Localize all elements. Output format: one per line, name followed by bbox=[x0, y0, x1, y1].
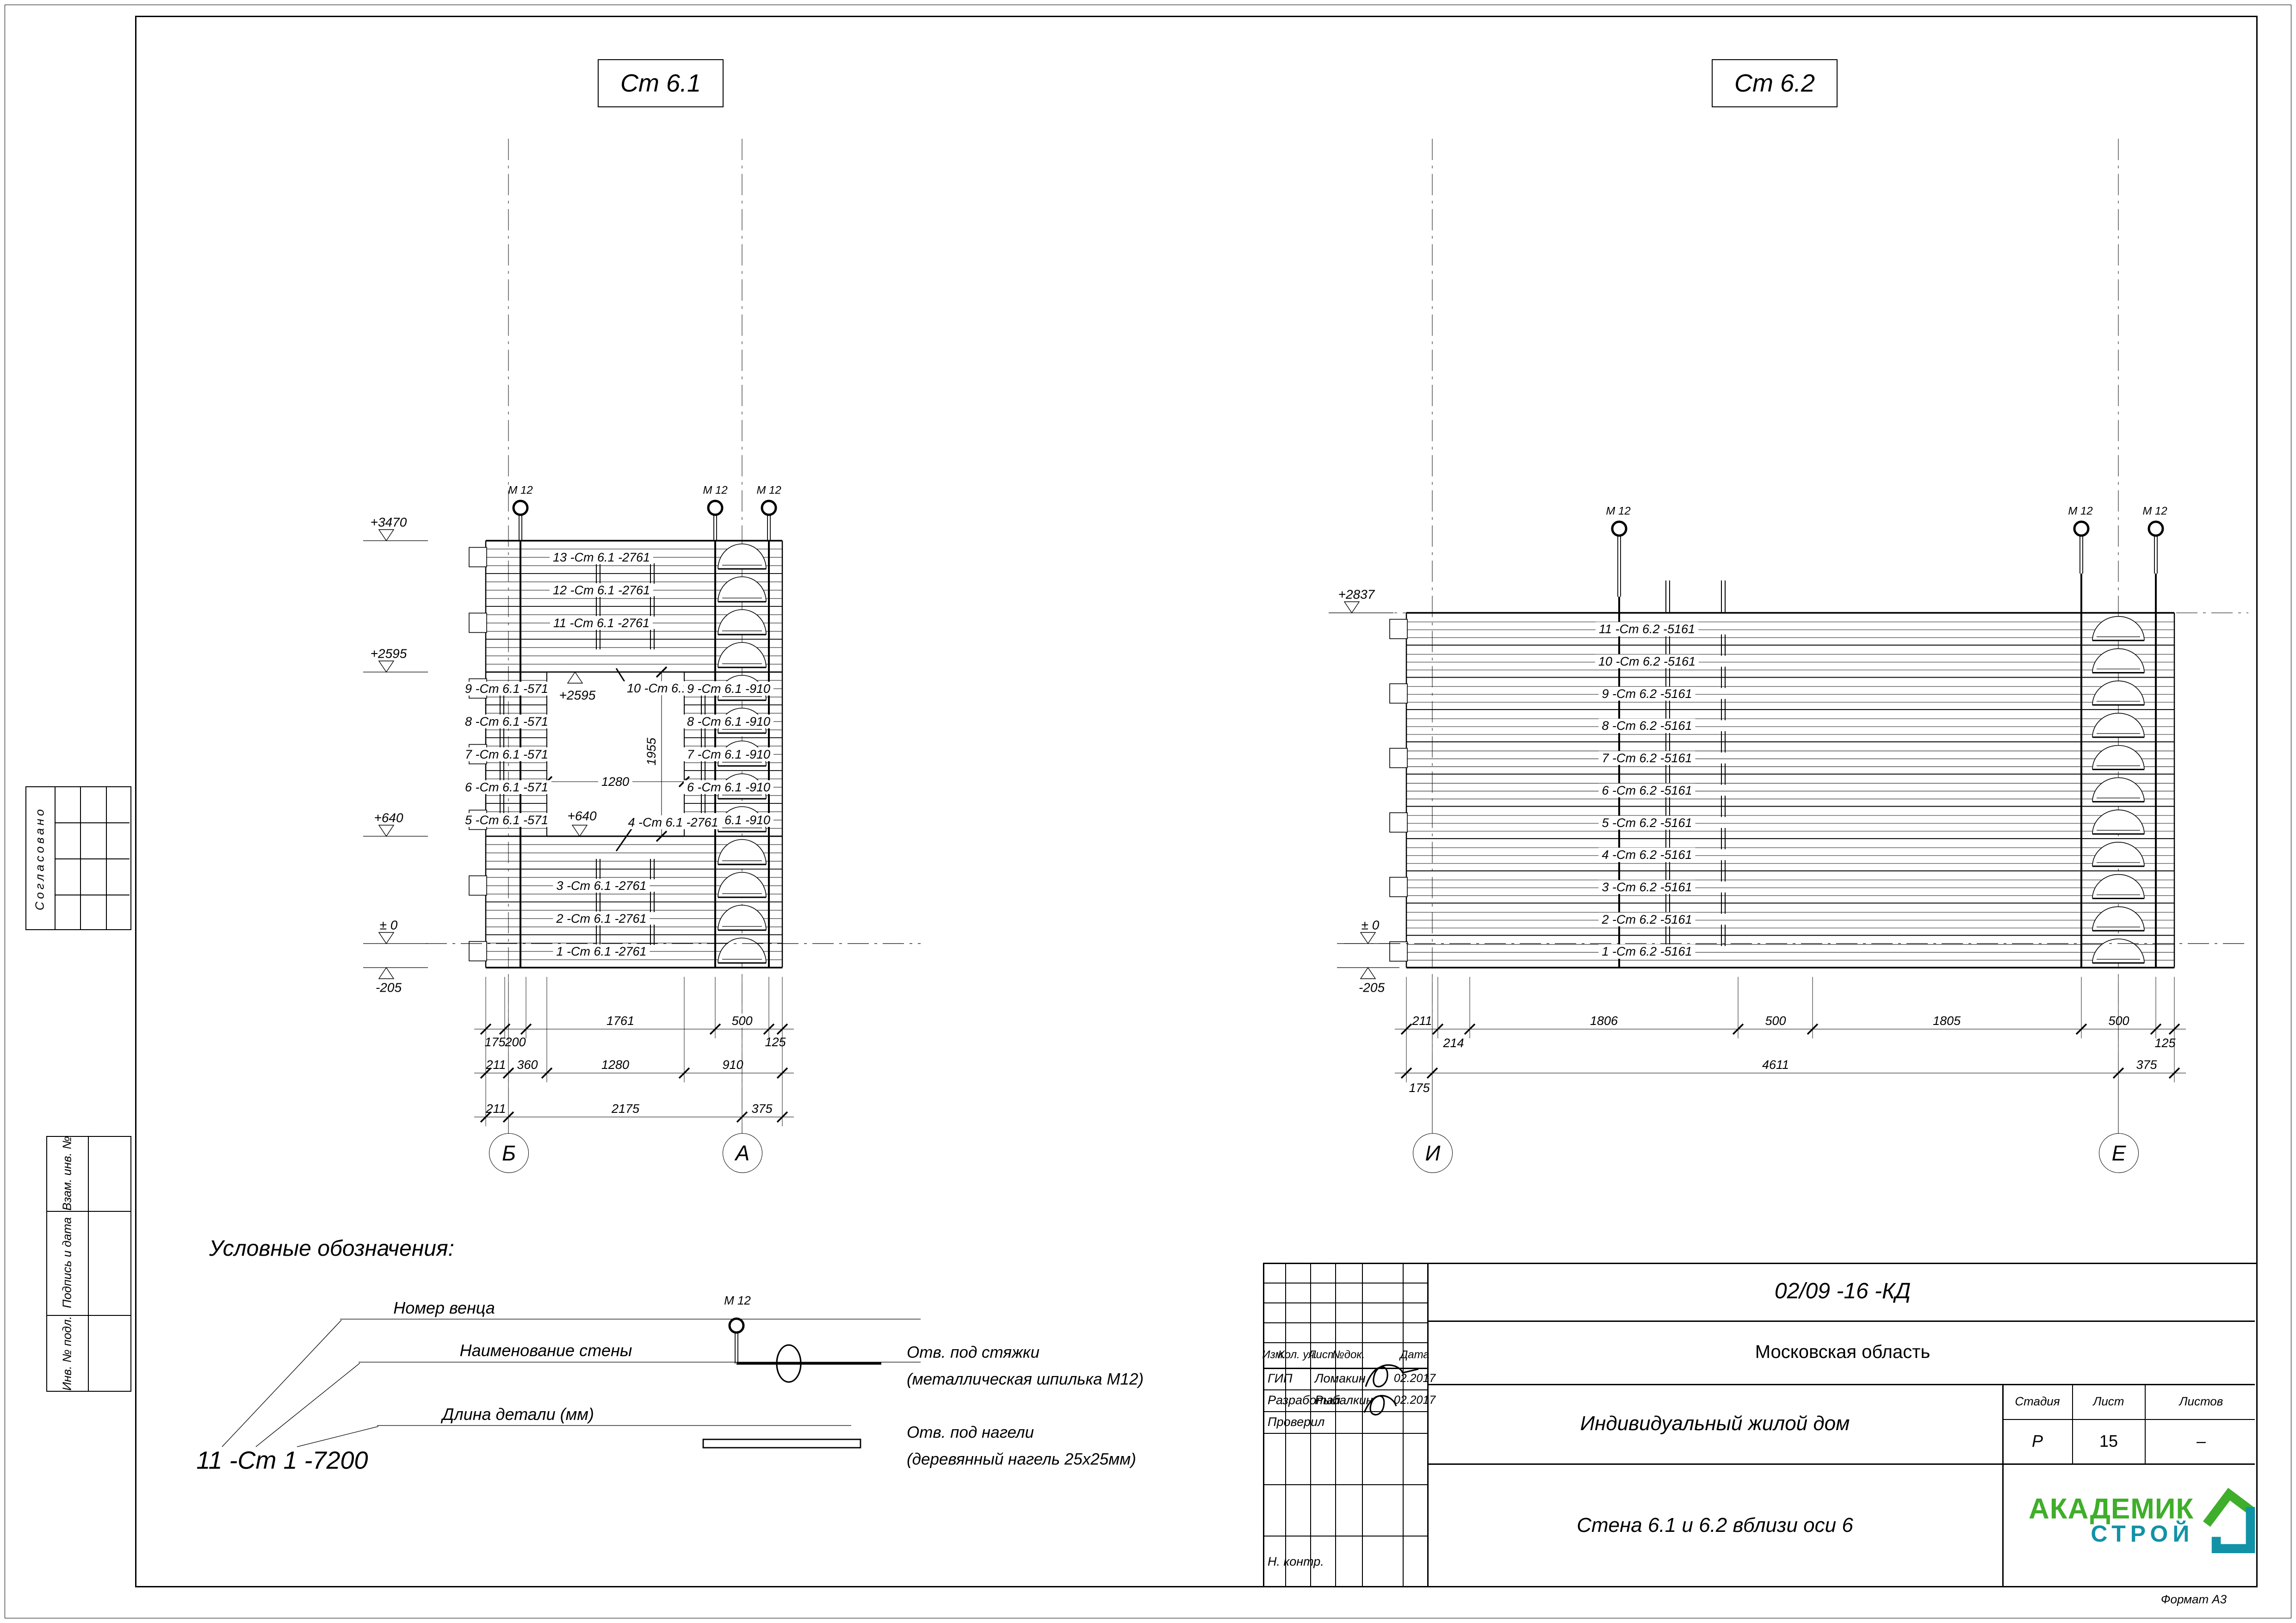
dim-label: 375 bbox=[751, 1102, 772, 1115]
approval-col-line bbox=[55, 786, 56, 930]
axis-bubble-b: Б bbox=[489, 1133, 529, 1173]
legend-example: 11 -Ст 1 -7200 bbox=[196, 1448, 368, 1474]
tb-row-role: ГИП bbox=[1268, 1372, 1293, 1385]
tb-col-ndok: №док. bbox=[1332, 1349, 1365, 1360]
course-label: 8 -Ст 6.1 -571 bbox=[462, 714, 551, 728]
course-label: 7 -Ст 6.2 -5161 bbox=[1598, 751, 1695, 765]
axis-bubble-e: Е bbox=[2099, 1133, 2139, 1173]
tb-line bbox=[1263, 1389, 1427, 1390]
legend-callout-length: Длина детали (мм) bbox=[442, 1406, 594, 1423]
tie-label-m12: М 12 bbox=[1606, 505, 1630, 517]
dim-label: 175 bbox=[1409, 1081, 1430, 1094]
tb-col-data: Дата bbox=[1400, 1349, 1429, 1360]
course-label: 8 -Ст 6.2 -5161 bbox=[1598, 719, 1695, 733]
tb-line bbox=[1263, 1322, 1427, 1323]
dim-label: 1806 bbox=[1590, 1014, 1618, 1027]
dim-label: 910 bbox=[722, 1058, 743, 1071]
elevation-label: +640 bbox=[567, 809, 596, 822]
approved-label: Согласовано bbox=[33, 807, 46, 911]
approval-col-line bbox=[80, 786, 81, 930]
axis-letter: А bbox=[736, 1141, 750, 1166]
dim-label: 500 bbox=[1765, 1014, 1786, 1027]
axis-bubble-i: И bbox=[1413, 1133, 1453, 1173]
tb-sheet-label: Лист bbox=[2093, 1395, 2124, 1407]
tb-line bbox=[2072, 1384, 2073, 1463]
approval-row-line bbox=[55, 895, 130, 895]
legend-sym2-line1: Отв. под нагели bbox=[907, 1425, 1034, 1442]
elevation-label: +640 bbox=[374, 811, 403, 824]
dim-label: 211 bbox=[486, 1058, 506, 1071]
dim-label: 1955 bbox=[644, 734, 658, 769]
logo-text-line2: СТРОЙ bbox=[2091, 1523, 2194, 1545]
tie-label-m12: М 12 bbox=[2068, 505, 2092, 517]
course-label: 9 -Ст 6.1 -910 bbox=[684, 681, 774, 695]
detail-title-st62-label: Ст 6.2 bbox=[1734, 69, 1815, 98]
stamp-side-label-inv: Инв. № подл. bbox=[61, 1316, 73, 1390]
tb-stage-label: Стадия bbox=[2015, 1395, 2060, 1407]
dim-label: 125 bbox=[2154, 1037, 2175, 1049]
tb-line bbox=[1403, 1263, 1404, 1587]
dim-label: 500 bbox=[728, 1014, 755, 1028]
course-label: 5 -Ст 6.1 -571 bbox=[462, 813, 551, 827]
course-label: 2 -Ст 6.2 -5161 bbox=[1598, 913, 1695, 926]
tb-line bbox=[1427, 1321, 2255, 1322]
approval-row-line bbox=[55, 822, 130, 823]
course-label: 9 -Ст 6.2 -5161 bbox=[1598, 686, 1695, 700]
elevation-label: -205 bbox=[1359, 981, 1385, 994]
detail-title-st62: Ст 6.2 bbox=[1712, 59, 1838, 107]
course-label: 9 -Ст 6.1 -571 bbox=[462, 681, 551, 695]
course-label: 11 -Ст 6.2 -5161 bbox=[1596, 622, 1698, 636]
tb-line bbox=[2002, 1419, 2255, 1420]
approval-row-line bbox=[55, 858, 130, 859]
axis-letter: Е bbox=[2112, 1141, 2126, 1166]
tb-line bbox=[1427, 1263, 1429, 1587]
course-label: 6 -Ст 6.1 -910 bbox=[684, 780, 774, 794]
legend-title: Условные обозначения: bbox=[209, 1237, 454, 1260]
course-label: 11 -Ст 6.1 -2761 bbox=[550, 616, 653, 629]
tb-row-role: Н. контр. bbox=[1268, 1555, 1324, 1568]
legend-sym1-line2: (металлическая шпилька М12) bbox=[907, 1371, 1144, 1388]
tb-line bbox=[1263, 1536, 1427, 1537]
course-label: 12 -Ст 6.1 -2761 bbox=[550, 583, 653, 597]
course-label: 2 -Ст 6.1 -2761 bbox=[553, 911, 650, 925]
dim-label: 175 bbox=[484, 1036, 505, 1049]
tie-label-m12: М 12 bbox=[508, 484, 532, 496]
stamp-side-label-vzam: Взам. инв. № bbox=[61, 1136, 73, 1211]
tb-line bbox=[1263, 1368, 1427, 1369]
tb-row-role: Проверил bbox=[1268, 1415, 1324, 1428]
elevation-label: -205 bbox=[376, 981, 402, 994]
logo-text-line1: АКАДЕМИК bbox=[2029, 1496, 2194, 1523]
elevation-label: +2837 bbox=[1338, 587, 1375, 601]
legend-sym1-line1: Отв. под стяжки bbox=[907, 1345, 1040, 1362]
stamp-side-line bbox=[88, 1136, 89, 1391]
tb-sheet-title: Стена 6.1 и 6.2 вблизи оси 6 bbox=[1577, 1515, 1853, 1536]
dim-label: 1761 bbox=[603, 1014, 637, 1028]
elevation-label: +2595 bbox=[371, 647, 407, 660]
dim-label: 360 bbox=[517, 1058, 538, 1071]
detail-title-st61-label: Ст 6.1 bbox=[620, 69, 701, 98]
tb-line bbox=[1362, 1263, 1363, 1587]
course-label: 6 -Ст 6.1 -571 bbox=[462, 780, 551, 794]
tb-line bbox=[1427, 1463, 2255, 1465]
axis-letter: И bbox=[1425, 1141, 1441, 1166]
tb-doc-number: 02/09 -16 -КД bbox=[1775, 1280, 1911, 1303]
tie-label-m12: М 12 bbox=[756, 484, 781, 496]
tb-sheets-label: Листов bbox=[2179, 1395, 2223, 1407]
dim-label: 211 bbox=[486, 1102, 506, 1115]
tb-row-name: Рыбалкин bbox=[1315, 1394, 1373, 1407]
dim-label: 125 bbox=[765, 1036, 786, 1049]
tb-line bbox=[2145, 1384, 2146, 1463]
tb-line bbox=[1263, 1484, 1427, 1485]
elevation-label: +3470 bbox=[371, 515, 407, 529]
stamp-side-strip bbox=[46, 1136, 131, 1392]
course-label: 3 -Ст 6.2 -5161 bbox=[1598, 880, 1695, 894]
legend-sym2-line2: (деревянный нагель 25х25мм) bbox=[907, 1451, 1136, 1469]
dim-label: 1805 bbox=[1933, 1014, 1961, 1027]
tb-line bbox=[2002, 1384, 2004, 1587]
tb-line bbox=[1263, 1342, 1427, 1343]
legend-tie-label: М 12 bbox=[724, 1294, 751, 1307]
dim-label: 214 bbox=[1443, 1037, 1464, 1049]
approval-col-line bbox=[106, 786, 107, 930]
dim-label: 4611 bbox=[1762, 1058, 1789, 1071]
elevation-label: ± 0 bbox=[1362, 918, 1380, 932]
tb-line bbox=[1263, 1283, 1427, 1284]
legend-callout-crown: Номер венца bbox=[393, 1299, 495, 1317]
sheet: { "sheet": { "format": "Формат А3", "app… bbox=[0, 0, 2296, 1623]
elevation-label: ± 0 bbox=[380, 918, 398, 932]
tb-line bbox=[1427, 1384, 2255, 1385]
tb-line bbox=[1263, 1411, 1427, 1412]
course-label: 1 -Ст 6.2 -5161 bbox=[1598, 944, 1695, 958]
tie-label-m12: М 12 bbox=[703, 484, 727, 496]
course-label: 13 -Ст 6.1 -2761 bbox=[550, 550, 653, 564]
course-label: 4 -Ст 6.2 -5161 bbox=[1598, 848, 1695, 862]
tb-object: Индивидуальный жилой дом bbox=[1580, 1413, 1850, 1434]
course-label: 1 -Ст 6.1 -2761 bbox=[553, 944, 650, 958]
dim-label: 200 bbox=[505, 1036, 526, 1049]
axis-letter: Б bbox=[502, 1141, 516, 1166]
tb-sheet-value: 15 bbox=[2099, 1432, 2118, 1450]
dim-label: 2175 bbox=[612, 1102, 639, 1115]
elevation-label: +2595 bbox=[559, 688, 596, 702]
legend-callout-wall: Наименование стены bbox=[460, 1342, 632, 1359]
company-logo: АКАДЕМИК СТРОЙ bbox=[2029, 1486, 2256, 1555]
tb-row-date: 02.2017 bbox=[1394, 1372, 1436, 1384]
course-label: 10 -Ст 6.2 -5161 bbox=[1595, 654, 1699, 668]
dim-label: 211 bbox=[1412, 1014, 1432, 1027]
tb-stage-value: Р bbox=[2032, 1432, 2043, 1450]
dim-label: 375 bbox=[2136, 1058, 2157, 1071]
tb-sheets-value: – bbox=[2197, 1432, 2206, 1450]
stamp-side-line bbox=[46, 1211, 130, 1212]
dim-label: 1280 bbox=[601, 1058, 629, 1071]
tb-row-date: 02.2017 bbox=[1394, 1394, 1436, 1406]
tb-line bbox=[1263, 1302, 1427, 1303]
detail-title-st61: Ст 6.1 bbox=[598, 59, 724, 107]
course-label: 7 -Ст 6.1 -571 bbox=[462, 747, 551, 761]
tie-label-m12: М 12 bbox=[2142, 505, 2167, 517]
course-label: 5 -Ст 6.2 -5161 bbox=[1598, 815, 1695, 829]
stamp-side-line bbox=[46, 1315, 130, 1316]
course-label: 6 -Ст 6.2 -5161 bbox=[1598, 784, 1695, 797]
dim-label: 500 bbox=[2108, 1014, 2129, 1027]
course-label: 7 -Ст 6.1 -910 bbox=[684, 747, 774, 761]
tb-line bbox=[1263, 1433, 1427, 1434]
format-label: Формат А3 bbox=[2161, 1593, 2227, 1605]
tb-region: Московская область bbox=[1755, 1342, 1931, 1362]
tb-line bbox=[1335, 1263, 1336, 1587]
course-label: 8 -Ст 6.1 -910 bbox=[684, 714, 774, 728]
logo-house-icon bbox=[2200, 1486, 2256, 1555]
axis-bubble-a: А bbox=[723, 1133, 762, 1173]
dim-label: 1280 bbox=[598, 775, 632, 789]
stamp-side-label-podpis: Подпись и дата bbox=[61, 1217, 73, 1308]
course-label: 3 -Ст 6.1 -2761 bbox=[553, 878, 650, 892]
course-label: 4 -Ст 6.1 -2761 bbox=[625, 815, 721, 829]
tb-row-name: Ломакин bbox=[1315, 1372, 1366, 1385]
